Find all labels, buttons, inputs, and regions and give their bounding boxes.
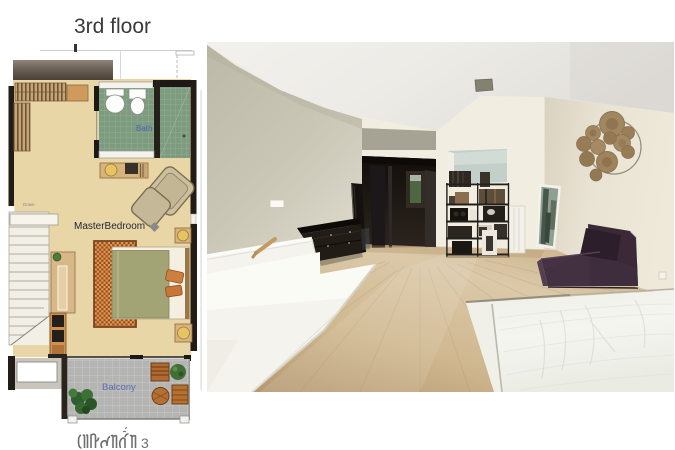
- svg-text:Bath: Bath: [136, 124, 152, 133]
- svg-text:Balcony: Balcony: [102, 382, 136, 393]
- svg-text:3: 3: [141, 435, 149, 450]
- svg-text:MasterBedroom: MasterBedroom: [74, 221, 145, 232]
- svg-text:3rd floor: 3rd floor: [74, 15, 151, 38]
- svg-text:Down: Down: [23, 202, 35, 207]
